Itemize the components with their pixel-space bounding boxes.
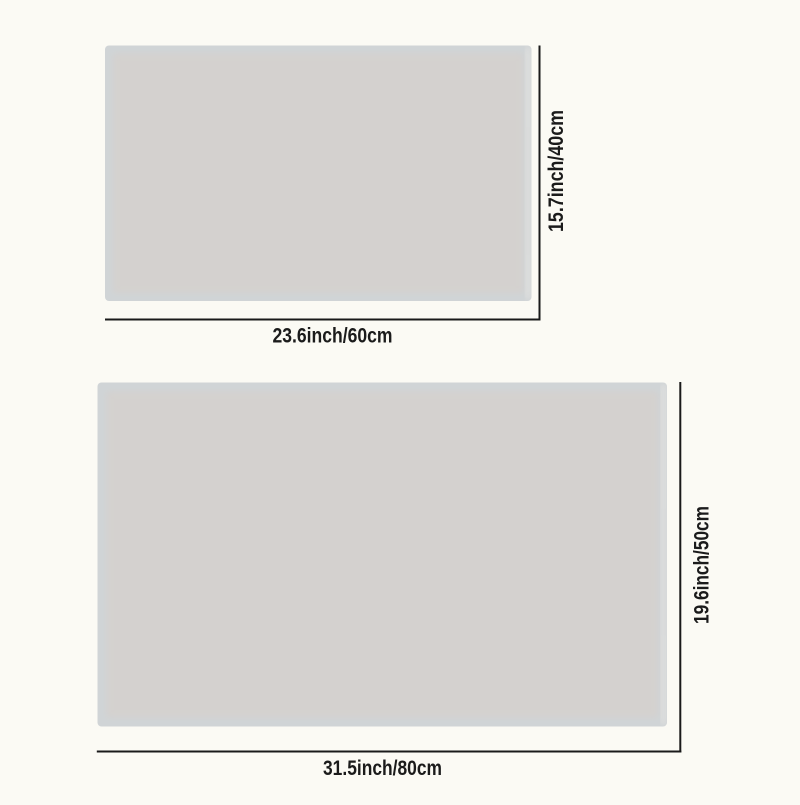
svg-text:15.7inch/40cm: 15.7inch/40cm <box>545 110 568 232</box>
svg-text:23.6inch/60cm: 23.6inch/60cm <box>273 325 393 348</box>
svg-text:19.6inch/50cm: 19.6inch/50cm <box>691 506 714 624</box>
svg-text:31.5inch/80cm: 31.5inch/80cm <box>323 757 442 780</box>
